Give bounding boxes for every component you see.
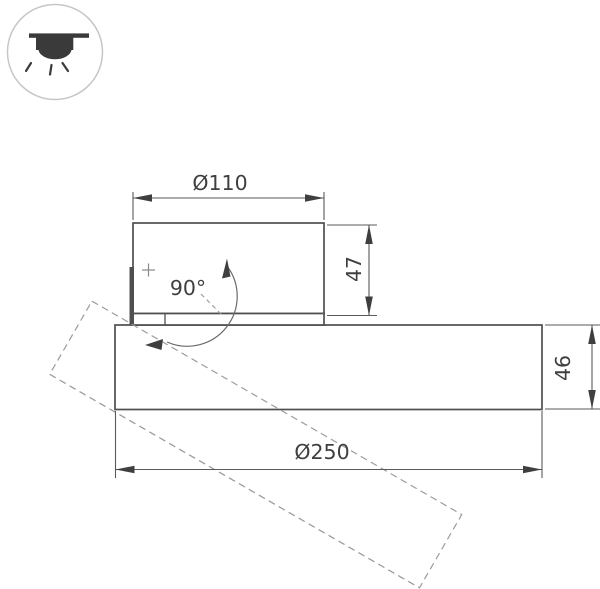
dim-arrow-right [305, 194, 324, 202]
dim-arrow-bottom [588, 390, 596, 409]
dim-label-base-height: 46 [551, 355, 575, 381]
dim-arrow-top [365, 225, 373, 244]
downlight-icon [8, 5, 103, 100]
dim-arrow-left [116, 466, 135, 474]
dimension-head-diameter: Ø110 [133, 171, 324, 220]
icon-lamp-body [36, 37, 73, 50]
hinge-post [130, 267, 135, 325]
dim-label-head-height: 47 [342, 256, 366, 282]
dim-arrow-right [523, 466, 542, 474]
dim-arrow-left [133, 194, 152, 202]
dim-arrow-bottom [365, 297, 373, 316]
angle-label: 90° [170, 276, 206, 300]
icon-ceiling-bar [29, 33, 89, 37]
dimension-base-diameter: Ø250 [116, 411, 543, 478]
dimension-head-height: 47 [327, 225, 377, 316]
dim-label-base-diameter: Ø250 [294, 440, 349, 464]
icon-light-ray-middle [50, 65, 52, 75]
head-flange-outline [133, 314, 324, 326]
technical-drawing-svg: 90° Ø110 47 46 Ø250 [0, 0, 600, 589]
dimension-base-height: 46 [545, 325, 600, 409]
dim-label-head-diameter: Ø110 [192, 171, 247, 195]
base-cylinder-outline [115, 325, 542, 410]
dim-arrow-top [588, 325, 596, 344]
fixture-views [115, 223, 542, 410]
page: 90° Ø110 47 46 Ø250 [0, 0, 600, 589]
